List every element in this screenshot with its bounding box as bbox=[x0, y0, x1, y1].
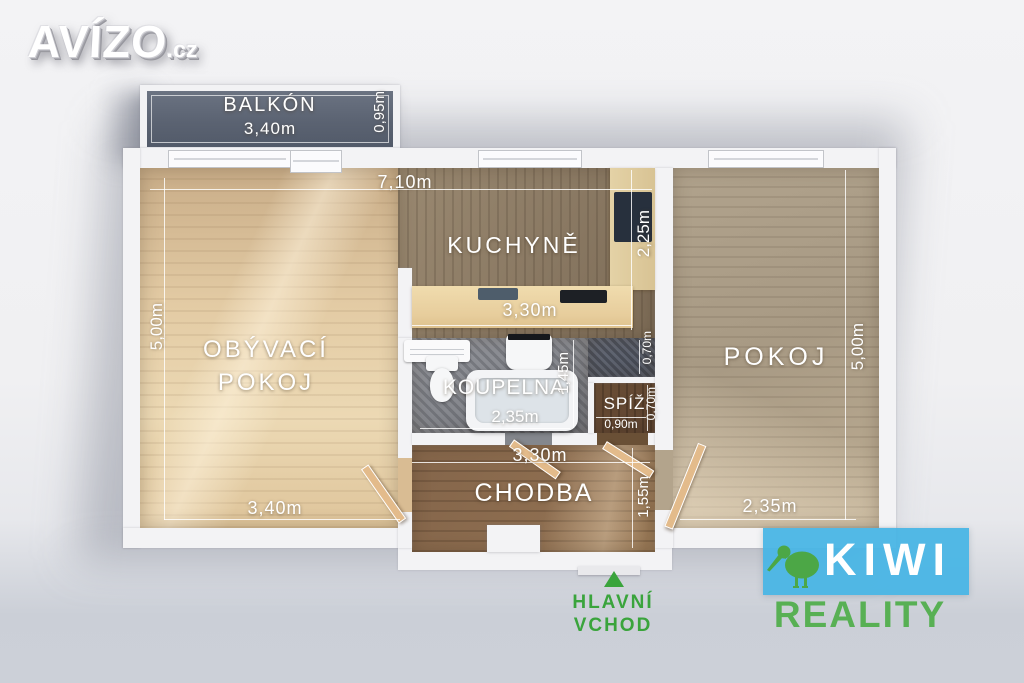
wall-segment bbox=[588, 377, 655, 383]
dimension-label-kitchen-height: 2,25m bbox=[634, 210, 654, 257]
window-bedroom bbox=[708, 150, 824, 168]
room-label-living-line2: POKOJ bbox=[140, 369, 392, 397]
dimension-label-total-width: 7,10m bbox=[355, 172, 455, 193]
wall-segment bbox=[879, 148, 896, 548]
wall-segment bbox=[123, 148, 140, 548]
dimension-label-bathroom-niche: 0,70m bbox=[640, 331, 654, 364]
dimension-label-pantry-width: 0,90m bbox=[592, 417, 650, 431]
dimension-label-kitchen-width: 3,30m bbox=[460, 300, 600, 321]
room-label-kitchen: KUCHYNĚ bbox=[398, 232, 630, 259]
dimension-line bbox=[164, 519, 400, 520]
dimension-label-pantry-height: 0,70m bbox=[644, 387, 658, 420]
room-label-living-line1: OBÝVACÍ bbox=[140, 336, 392, 364]
dimension-line bbox=[420, 428, 570, 429]
bathroom-shelf bbox=[508, 334, 550, 340]
dimension-label-hallway-height: 1,55m bbox=[635, 476, 652, 518]
dimension-line bbox=[631, 170, 632, 330]
dimension-label-bathroom-height: 1,45m bbox=[555, 352, 572, 394]
room-label-hallway: CHODBA bbox=[428, 479, 640, 508]
kiwi-logo-text: KIWI bbox=[808, 534, 968, 586]
dimension-label-bedroom-width: 2,35m bbox=[710, 496, 830, 517]
wall-segment bbox=[552, 433, 597, 445]
kitchen-sink bbox=[478, 288, 518, 300]
dimension-label-living-width: 3,40m bbox=[215, 498, 335, 519]
door-opening-bedroom bbox=[655, 450, 673, 510]
dimension-label-living-height: 5,00m bbox=[147, 303, 167, 350]
main-entrance-opening bbox=[487, 525, 540, 552]
entrance-label-line1: HLAVNÍ bbox=[553, 592, 673, 614]
dimension-label-hallway-width: 3,30m bbox=[470, 445, 610, 466]
wall-segment bbox=[412, 433, 505, 445]
dimension-line bbox=[680, 519, 856, 520]
entrance-arrow-icon bbox=[604, 571, 624, 587]
dimension-line bbox=[412, 325, 632, 326]
wall-segment bbox=[398, 268, 412, 338]
dimension-label-balcony-width: 3,40m bbox=[147, 119, 393, 139]
avizo-logo: AVÍZO.cz bbox=[27, 16, 200, 68]
avizo-logo-text: AVÍZO bbox=[27, 16, 169, 67]
window-kitchen bbox=[478, 150, 582, 168]
window-living-room bbox=[168, 150, 292, 168]
avizo-logo-suffix: .cz bbox=[166, 36, 198, 62]
door-opening-living bbox=[398, 458, 412, 512]
dimension-label-balcony-depth: 0,95m bbox=[371, 91, 388, 133]
room-label-balcony: BALKÓN bbox=[147, 94, 393, 117]
wall-segment bbox=[648, 433, 655, 445]
dimension-label-bedroom-height: 5,00m bbox=[848, 323, 868, 370]
wall-segment bbox=[123, 528, 412, 548]
kiwi-bird-icon bbox=[766, 540, 826, 590]
entrance-label-line2: VCHOD bbox=[553, 615, 673, 637]
dimension-label-bathroom-width: 2,35m bbox=[450, 407, 580, 427]
balcony-door bbox=[290, 150, 342, 173]
kiwi-logo-reality-text: REALITY bbox=[752, 594, 968, 636]
